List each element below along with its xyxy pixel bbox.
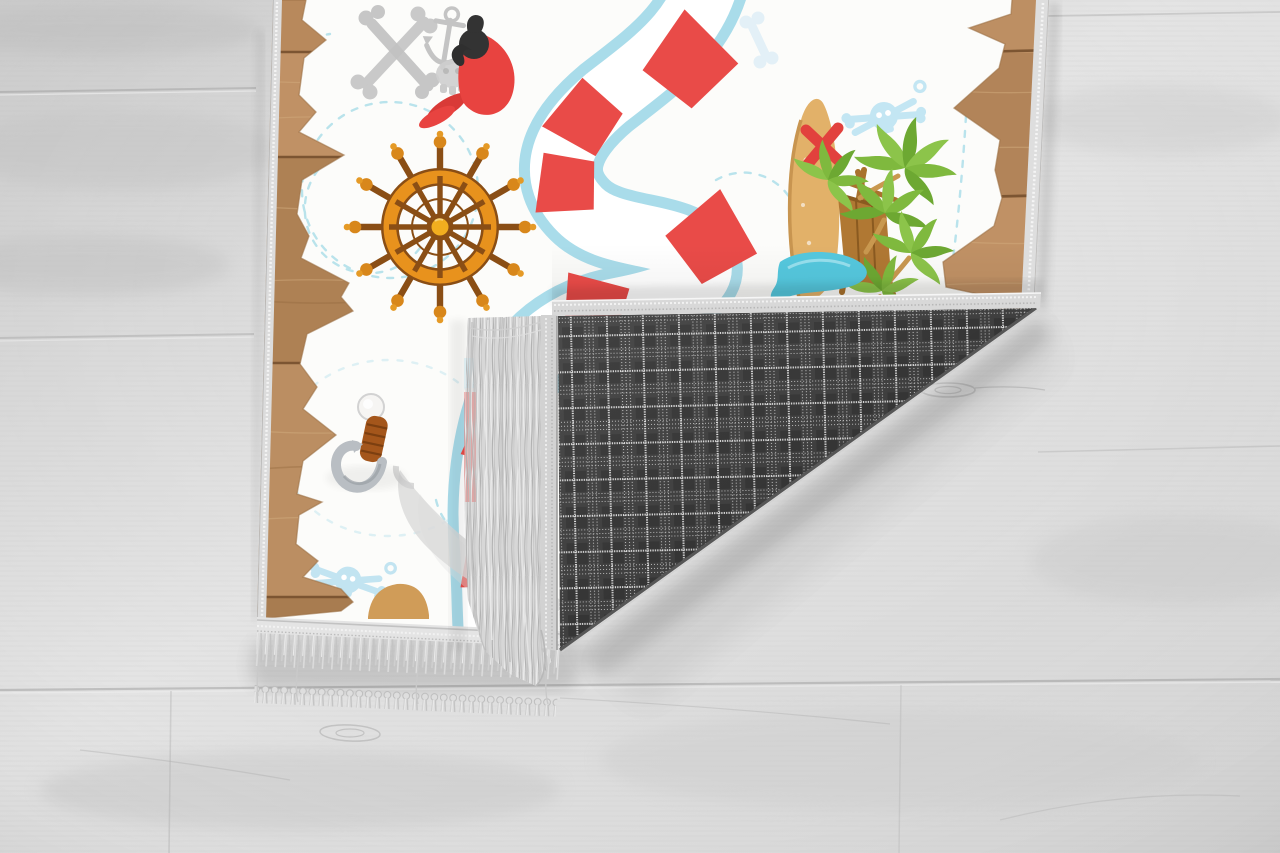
fold-binding-left	[541, 315, 557, 651]
parrot-head	[459, 29, 489, 59]
fold-fringe-contact-shadow	[450, 320, 466, 650]
product-photo	[0, 0, 1280, 853]
scene-svg	[0, 0, 1280, 853]
